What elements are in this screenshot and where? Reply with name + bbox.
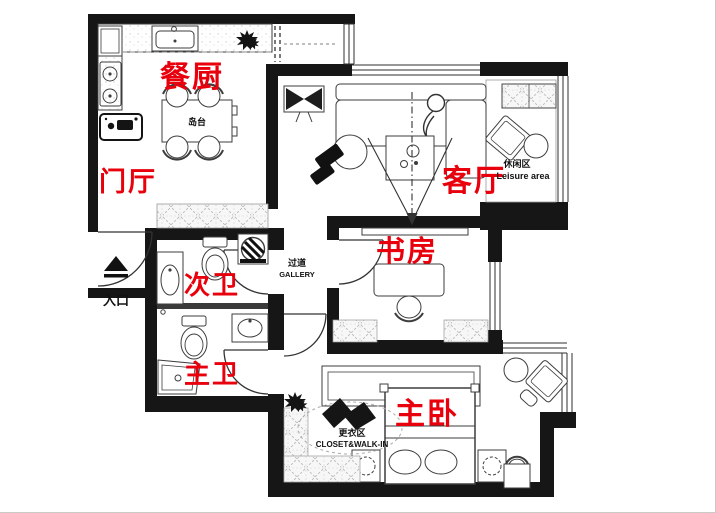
master-bath-area: 主卫 xyxy=(158,310,268,394)
balcony-sliding-door xyxy=(275,26,280,62)
label-study: 书房 xyxy=(376,235,438,268)
entrance-label: 入口 xyxy=(103,293,129,308)
corridor-area: 过道 GALLERY xyxy=(279,257,315,279)
desk xyxy=(374,264,444,296)
kitchen-area: 岛台 餐厨 xyxy=(98,24,272,160)
gallery-label-zh: 过道 xyxy=(288,257,306,268)
closet-label-en: CLOSET&WALK-IN xyxy=(316,440,389,449)
leisure-label-zh: 休闲区 xyxy=(502,158,530,169)
corridor-door xyxy=(284,314,326,356)
floor-plan-image: 岛台 餐厨 门厅 入口 xyxy=(0,0,716,513)
label-master-bedroom: 主卧 xyxy=(395,398,459,431)
master-bedroom-area: 更衣区 CLOSET&WALK-IN 主卧 xyxy=(284,358,569,488)
second-bath-area: 次卫 xyxy=(157,234,268,304)
pillow xyxy=(389,450,421,474)
toilet-icon xyxy=(181,316,207,359)
leisure-label-en: Leisure area xyxy=(496,171,550,181)
study-mat-left xyxy=(333,320,377,342)
bedroom-side-table xyxy=(504,358,528,382)
island-table: 岛台 xyxy=(162,84,237,159)
entry-arrow-icon xyxy=(104,256,128,278)
washing-machine-icon xyxy=(238,234,268,264)
hook-icon xyxy=(161,310,165,314)
pillow xyxy=(425,450,457,474)
projection-screen xyxy=(362,228,468,235)
label-living-room: 客厅 xyxy=(442,164,506,198)
closet-label-zh: 更衣区 xyxy=(338,427,365,438)
stool xyxy=(504,457,530,488)
island-label: 岛台 xyxy=(188,116,206,127)
nightstand-right xyxy=(478,450,506,482)
leisure-chair xyxy=(485,115,532,161)
study-mat-right xyxy=(444,320,488,342)
bedroom-top-window xyxy=(503,343,567,353)
wardrobe-bottom xyxy=(284,456,360,482)
counter-appliance-icon xyxy=(100,114,142,140)
label-foyer: 门厅 xyxy=(99,167,157,197)
study-area: 书房 xyxy=(333,228,488,342)
basin-icon xyxy=(157,252,183,304)
study-window xyxy=(490,262,500,330)
label-master-bath: 主卫 xyxy=(184,359,240,389)
leisure-side-table xyxy=(524,134,548,158)
coffee-table xyxy=(386,136,434,180)
basin-icon xyxy=(232,314,268,342)
balcony-window xyxy=(344,24,354,64)
floor-plan-svg: 岛台 餐厨 门厅 入口 xyxy=(0,0,716,513)
kitchen-tall-cabinet xyxy=(98,26,122,56)
gallery-label-en: GALLERY xyxy=(279,270,315,279)
kitchen-counter-left xyxy=(98,56,122,110)
shoe-cabinet xyxy=(157,204,268,228)
label-dining-kitchen: 餐厨 xyxy=(160,61,224,94)
tv-cabinet-icon xyxy=(284,86,324,122)
living-room-window xyxy=(352,65,480,75)
desk-chair xyxy=(395,296,423,321)
entry-door xyxy=(98,232,152,286)
label-second-bath: 次卫 xyxy=(184,270,240,300)
kitchen-sink-icon xyxy=(152,26,198,51)
leisure-window xyxy=(558,76,568,202)
